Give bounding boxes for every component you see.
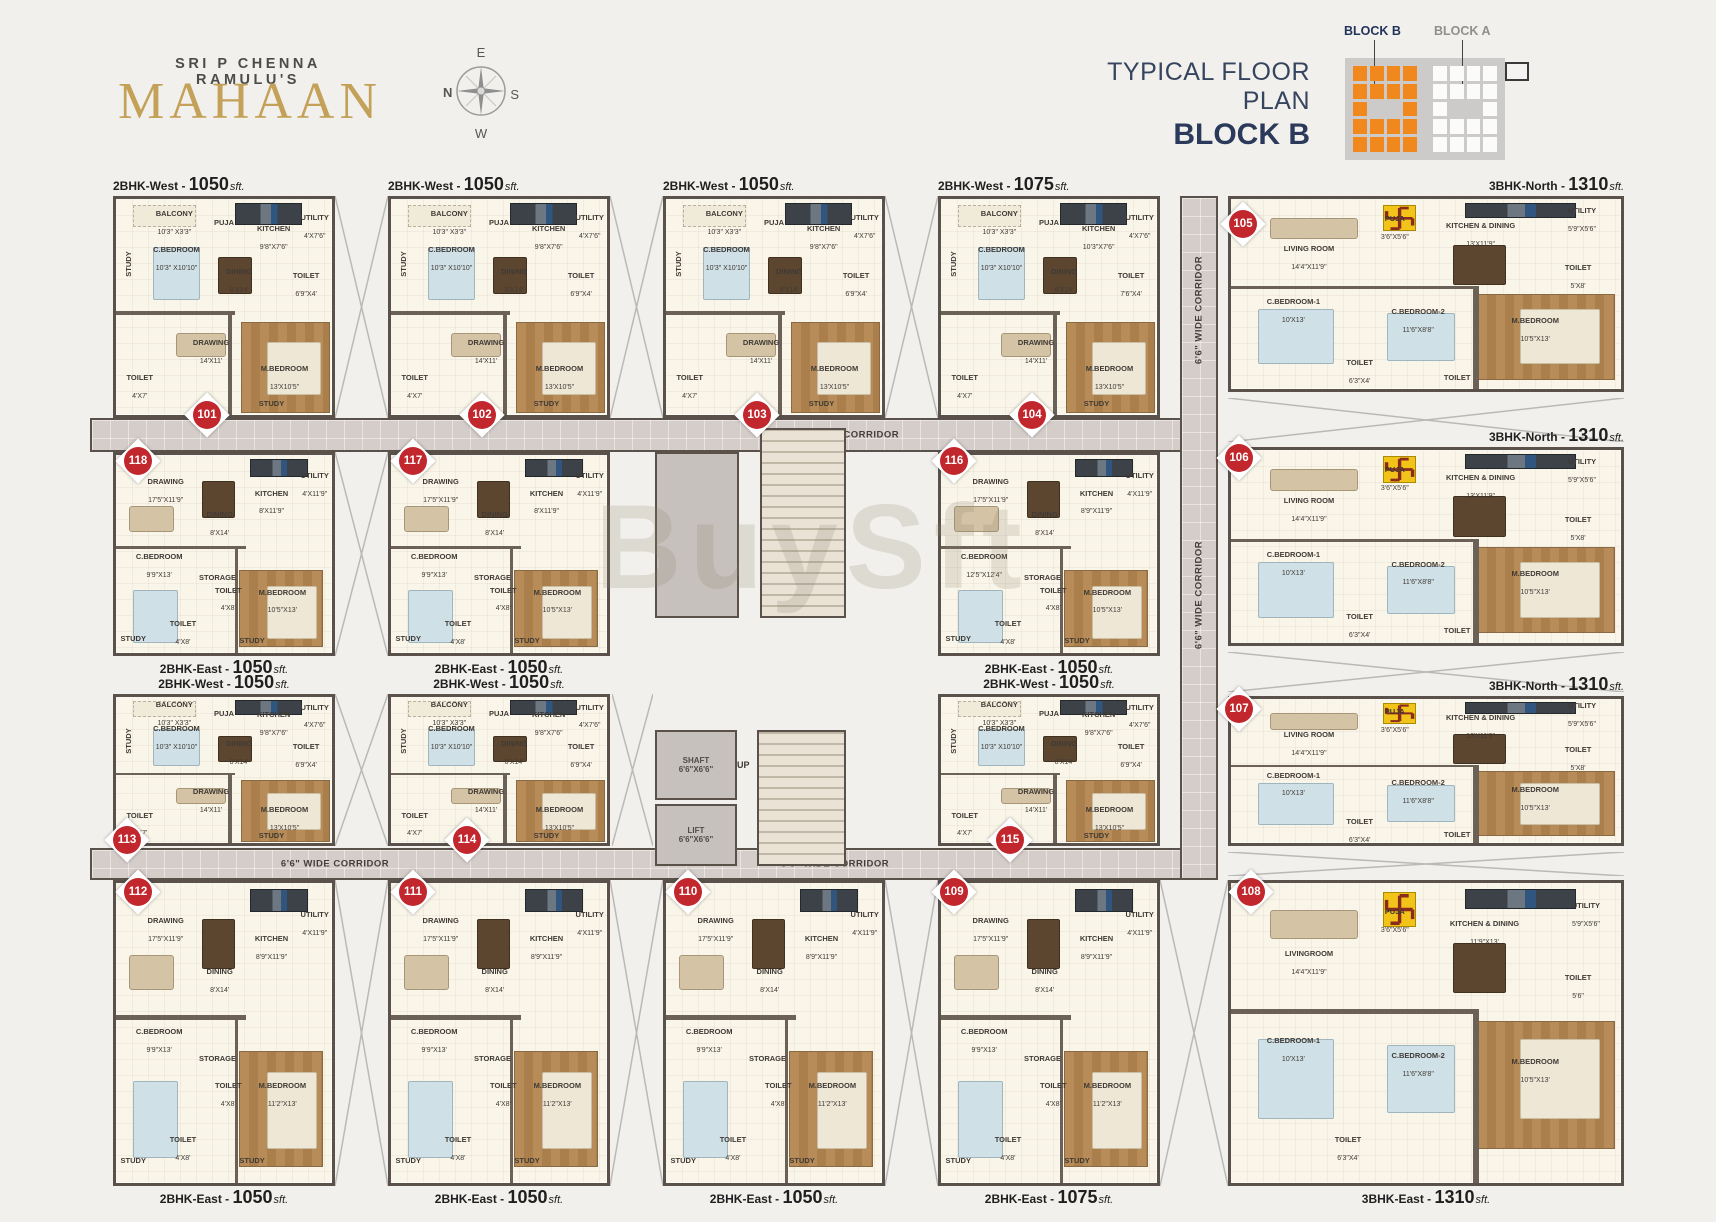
block-map-cell — [1403, 137, 1417, 152]
page-title: TYPICAL FLOOR PLAN BLOCK B — [1060, 58, 1310, 152]
room-label: KITCHEN9'8"X7'6" — [1082, 704, 1115, 740]
room-label: KITCHEN9'8"X7'6" — [532, 218, 565, 254]
unit-type-label: 2BHK-West - 1050sft. — [663, 176, 885, 195]
unit-111: DRAWING17'5"X11'9"DINING8'X14'KITCHEN8'9… — [388, 880, 610, 1186]
room-label: KITCHEN8'9"X11'9" — [805, 928, 838, 964]
room-label: DRAWING14'X11' — [193, 781, 229, 817]
room-label: DINING8'X14' — [482, 961, 508, 997]
block-map-cell — [1353, 84, 1367, 99]
room-label: UTILITY4'X11'9" — [1126, 465, 1154, 501]
room-label: STUDY — [1064, 1150, 1089, 1168]
block-map-cell — [1403, 119, 1417, 134]
unit-type-label: 2BHK-West - 1050sft. — [388, 176, 610, 195]
compass-north-label: N — [443, 85, 452, 100]
unit-115: BALCONY10'3" X3'3"PUJAKITCHEN9'8"X7'6"UT… — [938, 694, 1160, 846]
room-label: TOILET4'X8' — [1040, 1075, 1067, 1111]
decor-wallv — [1473, 286, 1479, 389]
unit-separator-x — [335, 694, 388, 846]
room-label: PUJA3'6"X5'6" — [1381, 208, 1409, 244]
room-label: C.BEDROOM10'3" X10'10" — [703, 239, 750, 275]
room-label: C.BEDROOM-211'6"X8'8" — [1392, 1045, 1445, 1081]
room-label: STORAGE — [749, 1048, 786, 1066]
decor-sofa — [954, 506, 999, 532]
room-label: C.BEDROOM10'3" X10'10" — [978, 239, 1025, 275]
unit-type-label: 2BHK-West - 1075sft. — [938, 176, 1160, 195]
room-label: DRAWING17'5"X11'9" — [973, 471, 1009, 507]
block-map-cell — [1370, 102, 1384, 117]
room-label: DINING8'X14' — [1032, 961, 1058, 997]
decor-wallh — [116, 1015, 246, 1020]
decor-wallh — [666, 1015, 796, 1020]
block-map-cell — [1467, 137, 1481, 152]
room-label: TOILET4'X8' — [765, 1075, 792, 1111]
room-label: STORAGE — [1024, 1048, 1061, 1066]
decor-wallh — [391, 311, 510, 314]
compass-east-label: E — [477, 45, 486, 60]
decor-wallh — [941, 311, 1060, 314]
room-label: KITCHEN10'3"X7'6" — [1082, 218, 1115, 254]
room-label: M.BEDROOM11'2"X13' — [534, 1075, 582, 1111]
room-label: TOILET4'X7' — [401, 367, 428, 403]
block-map-cell — [1433, 137, 1447, 152]
unit-117: DRAWING17'5"X11'9"DINING8'X14'KITCHEN8'X… — [388, 452, 610, 656]
room-label: C.BEDROOM-110'X13' — [1267, 291, 1320, 327]
room-label: M.BEDROOM10'5"X13' — [1511, 1051, 1559, 1087]
compass-rose-icon — [453, 63, 509, 119]
block-map-cell — [1353, 137, 1367, 152]
room-label: M.BEDROOM10'5"X13' — [259, 582, 307, 618]
unit-116: DRAWING17'5"X11'9"DINING8'X14'KITCHEN8'9… — [938, 452, 1160, 656]
room-label: UTILITY4'X7'6" — [576, 207, 604, 243]
unit-type-label: 3BHK-North - 1310sft. — [1228, 176, 1624, 195]
room-label: TOILET6'3"X4' — [1346, 352, 1373, 388]
room-label: STUDY — [809, 393, 834, 411]
room-label: KITCHEN8'9"X11'9" — [1080, 928, 1113, 964]
block-a-label: BLOCK A — [1434, 24, 1490, 38]
block-map-cell — [1467, 102, 1481, 117]
block-map-cell — [1450, 119, 1464, 134]
decor-wallv — [1473, 1009, 1479, 1183]
room-label: DINING8'X14' — [757, 961, 783, 997]
room-label: TOILET4'X7' — [951, 367, 978, 403]
room-label: TOILET4'X8' — [1040, 580, 1067, 616]
room-label: DRAWING14'X11' — [743, 332, 779, 368]
corridor-label: 6'6" WIDE CORRIDOR — [281, 859, 389, 870]
room-label: PUJA — [489, 212, 509, 230]
unit-112: DRAWING17'5"X11'9"DINING8'X14'KITCHEN8'9… — [113, 880, 335, 1186]
decor-wallh — [666, 311, 785, 314]
room-label: STUDY — [534, 393, 559, 411]
room-label: TOILET4'X8' — [170, 1129, 197, 1165]
block-key-map-tab — [1505, 62, 1529, 81]
block-map-cell — [1387, 119, 1401, 134]
corridor — [90, 418, 1218, 452]
room-label: TOILET4'X8' — [490, 1075, 517, 1111]
room-label: PUJA3'6"X5'6" — [1381, 901, 1409, 937]
unit-number-badge: 105 — [1220, 201, 1265, 246]
decor-wallh — [116, 311, 235, 314]
room-label: C.BEDROOM-110'X13' — [1267, 1030, 1320, 1066]
room-label: DINING8'X14' — [226, 261, 252, 297]
room-label: PUJA — [214, 212, 234, 230]
room-label: UTILITY5'9"X5'6" — [1568, 200, 1596, 236]
room-label: C.BEDROOM-110'X13' — [1267, 765, 1320, 801]
room-label: UTILITY4'X11'9" — [301, 465, 329, 501]
page-title-line1: TYPICAL FLOOR PLAN — [1060, 58, 1310, 116]
room-label: TOILET — [1444, 824, 1471, 842]
decor-counter — [1075, 889, 1133, 912]
room-label: TOILET4'X8' — [995, 613, 1022, 649]
core-label: LIFT6'6"X6'6" — [679, 826, 714, 844]
core-label: SHAFT6'6"X6'6" — [679, 756, 714, 774]
decor-wallv — [1473, 539, 1479, 643]
room-label: LIVINGROOM14'4"X11'9" — [1285, 943, 1333, 979]
block-map-cell — [1370, 137, 1384, 152]
room-label: STUDY — [946, 1150, 971, 1168]
block-a-grid — [1433, 66, 1497, 152]
room-label: STORAGE — [199, 1048, 236, 1066]
decor-sofa — [129, 506, 174, 532]
block-map-cell — [1433, 119, 1447, 134]
room-label: STUDY — [121, 1150, 146, 1168]
room-label: C.BEDROOM-211'6"X8'8" — [1392, 772, 1445, 808]
room-label: TOILET6'9"X4' — [568, 265, 595, 301]
room-label: STUDY — [259, 393, 284, 411]
unit-106: LIVING ROOM14'4"X11'9"PUJA3'6"X5'6"KITCH… — [1228, 447, 1624, 646]
room-label: KITCHEN8'X11'9" — [255, 483, 288, 519]
unit-104: BALCONY10'3" X3'3"PUJAKITCHEN10'3"X7'6"U… — [938, 196, 1160, 418]
block-map-cell — [1433, 102, 1447, 117]
room-label: TOILET5'X8' — [1565, 739, 1592, 775]
decor-sofa — [404, 955, 449, 990]
room-label: KITCHEN8'9"X11'9" — [255, 928, 288, 964]
unit-118: DRAWING17'5"X11'9"DINING8'X14'KITCHEN8'X… — [113, 452, 335, 656]
room-label: UTILITY4'X7'6" — [301, 207, 329, 243]
room-label: PUJA3'6"X5'6" — [1381, 459, 1409, 495]
room-label: STUDY — [943, 728, 961, 753]
unit-separator-x — [1228, 852, 1624, 876]
unit-separator-x — [612, 694, 653, 846]
room-label: DRAWING17'5"X11'9" — [698, 910, 734, 946]
room-label: UTILITY4'X7'6" — [1126, 697, 1154, 733]
room-label: M.BEDROOM11'2"X13' — [1084, 1075, 1132, 1111]
room-label: KITCHEN & DINING13'X11'9" — [1446, 467, 1515, 503]
room-label: PUJA — [489, 703, 509, 721]
room-label: STUDY — [514, 630, 539, 648]
room-label: UTILITY4'X7'6" — [301, 697, 329, 733]
room-label: C.BEDROOM-211'6"X8'8" — [1392, 301, 1445, 337]
unit-type-label: 2BHK-East - 1050sft. — [113, 1189, 335, 1208]
room-label: DRAWING14'X11' — [1018, 781, 1054, 817]
room-label: C.BEDROOM-110'X13' — [1267, 544, 1320, 580]
unit-101: BALCONY10'3" X3'3"PUJAKITCHEN9'8"X7'6"UT… — [113, 196, 335, 418]
room-label: STUDY — [239, 630, 264, 648]
room-label: LIVING ROOM14'4"X11'9" — [1284, 238, 1334, 274]
room-label: KITCHEN9'8"X7'6" — [257, 704, 290, 740]
block-map-cell — [1483, 102, 1497, 117]
decor-counter — [1465, 889, 1576, 909]
core-stairs — [760, 428, 846, 618]
block-map-cell — [1370, 119, 1384, 134]
unit-number-badge: 108 — [1228, 869, 1273, 914]
room-label: UTILITY5'9"X5'6" — [1568, 451, 1596, 487]
room-label: DINING8'X14' — [482, 504, 508, 540]
room-label: TOILET4'X7' — [676, 367, 703, 403]
unit-107: LIVING ROOM14'4"X11'9"PUJA3'6"X5'6"KITCH… — [1228, 696, 1624, 846]
room-label: TOILET4'X7' — [401, 805, 428, 841]
room-label: STUDY — [671, 1150, 696, 1168]
room-label: DINING8'X14' — [776, 261, 802, 297]
room-label: C.BEDROOM10'3" X10'10" — [978, 719, 1025, 755]
room-label: DINING8'X14' — [207, 961, 233, 997]
room-label: M.BEDROOM10'5"X13' — [534, 582, 582, 618]
block-map-cell — [1387, 102, 1401, 117]
block-map-cell — [1483, 84, 1497, 99]
block-map-cell — [1370, 84, 1384, 99]
unit-type-label: 2BHK-East - 1050sft. — [388, 1189, 610, 1208]
unit-103: BALCONY10'3" X3'3"PUJAKITCHEN9'8"X7'6"UT… — [663, 196, 885, 418]
room-label: PUJA — [1039, 703, 1059, 721]
room-label: M.BEDROOM13'X10'5" — [811, 358, 859, 394]
page-title-line2: BLOCK B — [1060, 118, 1310, 152]
unit-type-label: 2BHK-West - 1050sft. — [938, 674, 1160, 693]
room-label: DRAWING14'X11' — [468, 781, 504, 817]
decor-sofa — [129, 955, 174, 990]
block-map-cell — [1403, 102, 1417, 117]
room-label: KITCHEN9'8"X7'6" — [257, 218, 290, 254]
decor-sofa — [954, 955, 999, 990]
room-label: STUDY — [943, 251, 961, 276]
room-label: TOILET6'3"X4' — [1335, 1129, 1362, 1165]
decor-counter — [525, 459, 583, 477]
room-label: DINING8'X14' — [501, 733, 527, 769]
room-label: M.BEDROOM11'2"X13' — [259, 1075, 307, 1111]
room-label: C.BEDROOM10'3" X10'10" — [153, 719, 200, 755]
decor-wallh — [1231, 539, 1473, 542]
block-map-cell — [1450, 84, 1464, 99]
unit-separator-x — [885, 196, 938, 418]
decor-wallh — [116, 773, 235, 775]
room-label: STUDY — [118, 251, 136, 276]
unit-108: LIVINGROOM14'4"X11'9"PUJA3'6"X5'6"KITCHE… — [1228, 880, 1624, 1186]
room-label: KITCHEN8'X11'9" — [530, 483, 563, 519]
room-label: UTILITY4'X7'6" — [576, 697, 604, 733]
block-map-cell — [1387, 66, 1401, 81]
room-label: C.BEDROOM12'5"X12'4" — [961, 546, 1008, 582]
block-map-cell — [1403, 66, 1417, 81]
room-label: STUDY — [239, 1150, 264, 1168]
room-label: TOILET6'9"X4' — [568, 736, 595, 772]
unit-separator-x — [610, 880, 663, 1186]
room-label: TOILET4'X7' — [951, 805, 978, 841]
room-label: TOILET4'X8' — [170, 613, 197, 649]
decor-sofa — [1270, 910, 1358, 939]
decor-counter — [1075, 459, 1133, 477]
room-label: DINING8'X14' — [501, 261, 527, 297]
up-label: UP — [737, 760, 750, 770]
room-label: DRAWING17'5"X11'9" — [423, 471, 459, 507]
unit-102: BALCONY10'3" X3'3"PUJAKITCHEN9'8"X7'6"UT… — [388, 196, 610, 418]
room-label: UTILITY4'X11'9" — [576, 904, 604, 940]
room-label: TOILET4'X8' — [995, 1129, 1022, 1165]
decor-wallh — [1231, 1009, 1473, 1014]
room-label: STUDY — [396, 1150, 421, 1168]
core-shaft — [655, 452, 739, 618]
room-label: KITCHEN8'9"X11'9" — [1080, 483, 1113, 519]
unit-separator-x — [610, 196, 663, 418]
room-label: TOILET4'X8' — [490, 580, 517, 616]
unit-type-label: 2BHK-West - 1050sft. — [113, 176, 335, 195]
room-label: UTILITY4'X7'6" — [1126, 207, 1154, 243]
room-label: DRAWING14'X11' — [1018, 332, 1054, 368]
room-label: BALCONY10'3" X3'3" — [431, 203, 468, 239]
room-label: M.BEDROOM13'X10'5" — [1086, 358, 1134, 394]
unit-110: DRAWING17'5"X11'9"DINING8'X14'KITCHEN8'9… — [663, 880, 885, 1186]
room-label: STUDY — [396, 628, 421, 646]
decor-wallh — [391, 1015, 521, 1020]
room-label: M.BEDROOM10'5"X13' — [1511, 779, 1559, 815]
project-logo: MAHAAN — [110, 72, 390, 131]
room-label: TOILET6'9"X4' — [843, 265, 870, 301]
room-label: STUDY — [259, 825, 284, 843]
core-shaft: LIFT6'6"X6'6" — [655, 804, 737, 866]
compass-icon: E S W N — [443, 45, 519, 141]
unit-type-label: 3BHK-North - 1310sft. — [1228, 427, 1624, 446]
room-label: STUDY — [668, 251, 686, 276]
room-label: UTILITY4'X11'9" — [851, 904, 879, 940]
room-label: STUDY — [946, 628, 971, 646]
room-label: TOILET4'X8' — [445, 1129, 472, 1165]
corridor-label: 6'6" WIDE CORRIDOR — [1194, 541, 1205, 649]
room-label: UTILITY4'X11'9" — [301, 904, 329, 940]
block-map-cell — [1433, 84, 1447, 99]
unit-separator-x — [1160, 880, 1228, 1186]
room-label: STUDY — [789, 1150, 814, 1168]
room-label: TOILET4'X8' — [720, 1129, 747, 1165]
unit-separator-x — [885, 880, 938, 1186]
unit-105: LIVING ROOM14'4"X11'9"PUJA3'6"X5'6"KITCH… — [1228, 196, 1624, 392]
decor-wallh — [941, 1015, 1071, 1020]
decor-sofa — [404, 506, 449, 532]
unit-109: DRAWING17'5"X11'9"DINING8'X14'KITCHEN8'9… — [938, 880, 1160, 1186]
decor-sofa — [1270, 469, 1358, 490]
compass-south-label: S — [510, 87, 519, 102]
room-label: TOILET5'X8' — [1565, 257, 1592, 293]
room-label: STUDY — [534, 825, 559, 843]
room-label: DRAWING17'5"X11'9" — [423, 910, 459, 946]
room-label: STUDY — [393, 251, 411, 276]
unit-type-label: 2BHK-West - 1050sft. — [113, 674, 335, 693]
block-map-cell — [1353, 102, 1367, 117]
block-map-cell — [1450, 102, 1464, 117]
room-label: STUDY — [121, 628, 146, 646]
room-label: DINING8'X14' — [1032, 504, 1058, 540]
block-map-cell — [1450, 66, 1464, 81]
floor-plan: 6'6" WIDE CORRIDOR6'6" WIDE CORRIDOR6'6"… — [0, 0, 1716, 1222]
block-map-cell — [1483, 137, 1497, 152]
room-label: M.BEDROOM10'5"X13' — [1511, 563, 1559, 599]
block-map-cell — [1403, 84, 1417, 99]
core-stairs: UP — [757, 730, 846, 866]
unit-separator-x — [335, 196, 388, 418]
decor-counter — [250, 459, 308, 477]
corridor-label: 6'6" WIDE CORRIDOR — [1194, 256, 1205, 364]
room-label: DINING8'X14' — [1051, 261, 1077, 297]
unit-114: BALCONY10'3" X3'3"PUJAKITCHEN9'8"X7'6"UT… — [388, 694, 610, 846]
room-label: M.BEDROOM10'5"X13' — [1511, 310, 1559, 346]
room-label: UTILITY5'9"X5'6" — [1572, 895, 1600, 931]
decor-counter — [800, 889, 858, 912]
room-label: DRAWING17'5"X11'9" — [148, 471, 184, 507]
room-label: STUDY — [118, 728, 136, 753]
block-b-label: BLOCK B — [1344, 24, 1401, 38]
unit-separator-x — [335, 452, 388, 656]
room-label: C.BEDROOM9'9"X13' — [686, 1021, 733, 1057]
room-label: BALCONY10'3" X3'3" — [706, 203, 743, 239]
room-label: KITCHEN9'8"X7'6" — [807, 218, 840, 254]
room-label: TOILET4'X8' — [445, 613, 472, 649]
room-label: PUJA — [1039, 212, 1059, 230]
room-label: TOILET — [1444, 367, 1471, 385]
unit-type-label: 2BHK-East - 1050sft. — [663, 1189, 885, 1208]
room-label: M.BEDROOM11'2"X13' — [809, 1075, 857, 1111]
unit-type-label: 3BHK-East - 1310sft. — [1228, 1189, 1624, 1208]
room-label: LIVING ROOM14'4"X11'9" — [1284, 724, 1334, 760]
room-label: M.BEDROOM13'X10'5" — [261, 358, 309, 394]
decor-wallh — [391, 773, 510, 775]
block-map-cell — [1387, 137, 1401, 152]
decor-table — [1453, 943, 1506, 993]
decor-counter — [525, 889, 583, 912]
decor-wallh — [1231, 286, 1473, 289]
room-label: KITCHEN & DINING13'X11'9" — [1446, 215, 1515, 251]
room-label: TOILET — [1444, 621, 1471, 639]
room-label: TOILET4'X7' — [126, 367, 153, 403]
corridor — [90, 848, 1218, 880]
unit-separator-x — [335, 880, 388, 1186]
room-label: STUDY — [1084, 393, 1109, 411]
room-label: TOILET6'9"X4' — [293, 736, 320, 772]
block-map-cell — [1450, 137, 1464, 152]
room-label: C.BEDROOM9'9"X13' — [411, 1021, 458, 1057]
room-label: C.BEDROOM10'3" X10'10" — [153, 239, 200, 275]
room-label: TOILET6'9"X4' — [1118, 736, 1145, 772]
room-label: STUDY — [514, 1150, 539, 1168]
room-label: KITCHEN8'9"X11'9" — [530, 928, 563, 964]
unit-113: BALCONY10'3" X3'3"PUJAKITCHEN9'8"X7'6"UT… — [113, 694, 335, 846]
room-label: TOILET5'X8' — [1565, 509, 1592, 545]
room-label: M.BEDROOM10'5"X13' — [1084, 582, 1132, 618]
room-label: STUDY — [1084, 825, 1109, 843]
room-label: DRAWING14'X11' — [193, 332, 229, 368]
block-map-cell — [1467, 119, 1481, 134]
block-map-cell — [1467, 84, 1481, 99]
block-b-grid — [1353, 66, 1417, 152]
decor-wallv — [1473, 765, 1479, 843]
unit-type-label: 2BHK-West - 1050sft. — [388, 674, 610, 693]
room-label: TOILET4'X8' — [215, 1075, 242, 1111]
block-map-cell — [1433, 66, 1447, 81]
room-label: STUDY — [393, 728, 411, 753]
room-label: C.BEDROOM9'9"X13' — [961, 1021, 1008, 1057]
block-map-cell — [1467, 66, 1481, 81]
room-label: C.BEDROOM9'9"X13' — [136, 1021, 183, 1057]
unit-type-label: 2BHK-East - 1075sft. — [938, 1189, 1160, 1208]
room-label: KITCHEN & DINING11'9"X13' — [1450, 913, 1519, 949]
room-label: STORAGE — [474, 1048, 511, 1066]
decor-sofa — [679, 955, 724, 990]
block-map-cell — [1370, 66, 1384, 81]
